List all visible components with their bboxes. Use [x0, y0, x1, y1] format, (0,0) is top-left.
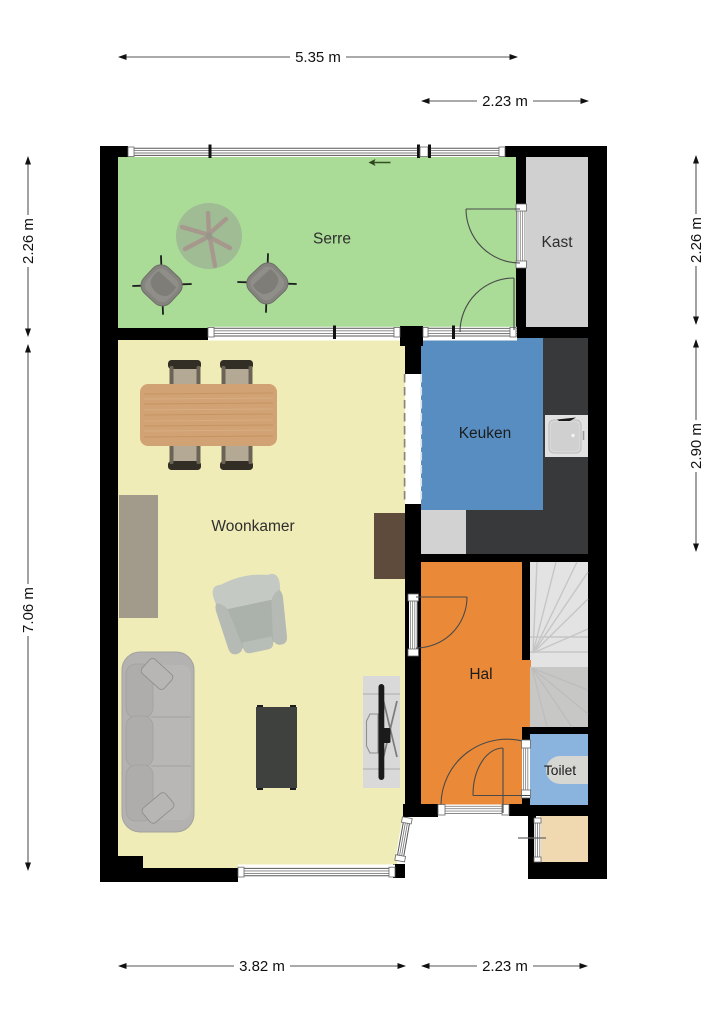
svg-text:2.23 m: 2.23 m — [482, 93, 528, 110]
svg-text:Serre: Serre — [313, 231, 351, 248]
svg-text:5.35 m: 5.35 m — [295, 49, 341, 66]
svg-text:Woonkamer: Woonkamer — [211, 518, 294, 535]
svg-text:Hal: Hal — [469, 666, 492, 683]
svg-text:2.90 m: 2.90 m — [688, 423, 705, 469]
svg-text:Keuken: Keuken — [459, 425, 512, 442]
svg-text:2.26 m: 2.26 m — [20, 218, 37, 264]
svg-text:7.06 m: 7.06 m — [20, 587, 37, 633]
svg-text:2.23 m: 2.23 m — [482, 958, 528, 975]
svg-text:Kast: Kast — [541, 234, 573, 251]
svg-text:2.26 m: 2.26 m — [688, 217, 705, 263]
svg-text:3.82 m: 3.82 m — [239, 958, 285, 975]
svg-text:Toilet: Toilet — [544, 763, 576, 778]
